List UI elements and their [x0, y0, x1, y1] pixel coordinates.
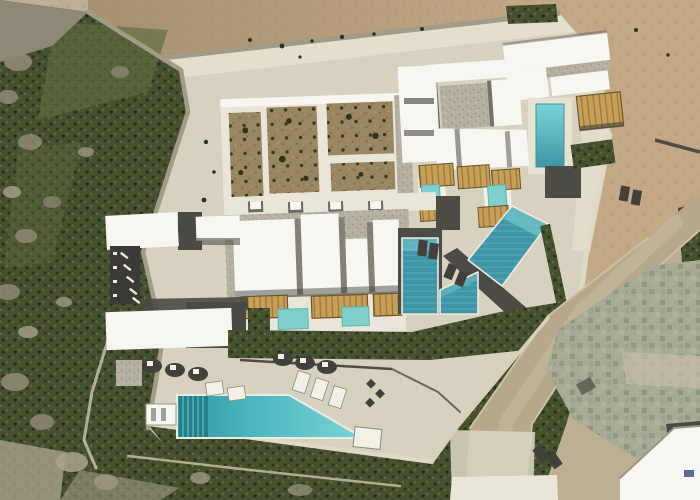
roof-volume-2	[300, 213, 341, 294]
plunge-pool	[278, 308, 309, 329]
plunge-pool	[342, 306, 370, 326]
pergola	[373, 293, 402, 316]
pergola	[457, 165, 490, 189]
cottage-south	[450, 475, 558, 500]
service-roof-c	[105, 308, 232, 350]
rock	[288, 484, 312, 496]
garden-bed-southeast	[330, 161, 395, 191]
north-villa-pool	[536, 104, 564, 167]
lounger	[417, 240, 428, 257]
connector-wing	[398, 65, 441, 163]
garden-bed-east	[326, 101, 394, 155]
roof-volume-1	[233, 219, 298, 297]
shed-slot	[151, 408, 156, 421]
pool-cabana	[353, 427, 382, 450]
garden-bed-west	[229, 112, 264, 197]
eave-shadow	[196, 238, 240, 245]
shed-slot	[161, 408, 166, 421]
roof-slab	[491, 79, 522, 127]
aerial-photo	[0, 0, 700, 500]
rock	[190, 472, 210, 484]
kitchen-garden	[220, 93, 414, 208]
pergola	[419, 163, 454, 187]
timber-deck-north	[436, 196, 460, 230]
gravel-roof	[439, 83, 490, 130]
roof-volume-4	[373, 219, 401, 292]
roof-gap-shadow	[404, 130, 434, 136]
pergola-north	[576, 92, 623, 131]
patio-light-band	[622, 352, 700, 388]
garden-bed-center	[266, 106, 319, 194]
service-roof-b	[196, 215, 241, 241]
lounger	[428, 243, 439, 260]
skylight-blue	[684, 470, 694, 477]
lawn-patch-north	[506, 4, 558, 24]
stone-steps	[116, 360, 142, 386]
screenshot-root	[0, 0, 700, 500]
dark-deck-east	[545, 166, 581, 198]
roof-volume-3	[345, 238, 369, 293]
service-roof-a	[105, 212, 179, 250]
roof-gap-shadow	[404, 98, 434, 104]
